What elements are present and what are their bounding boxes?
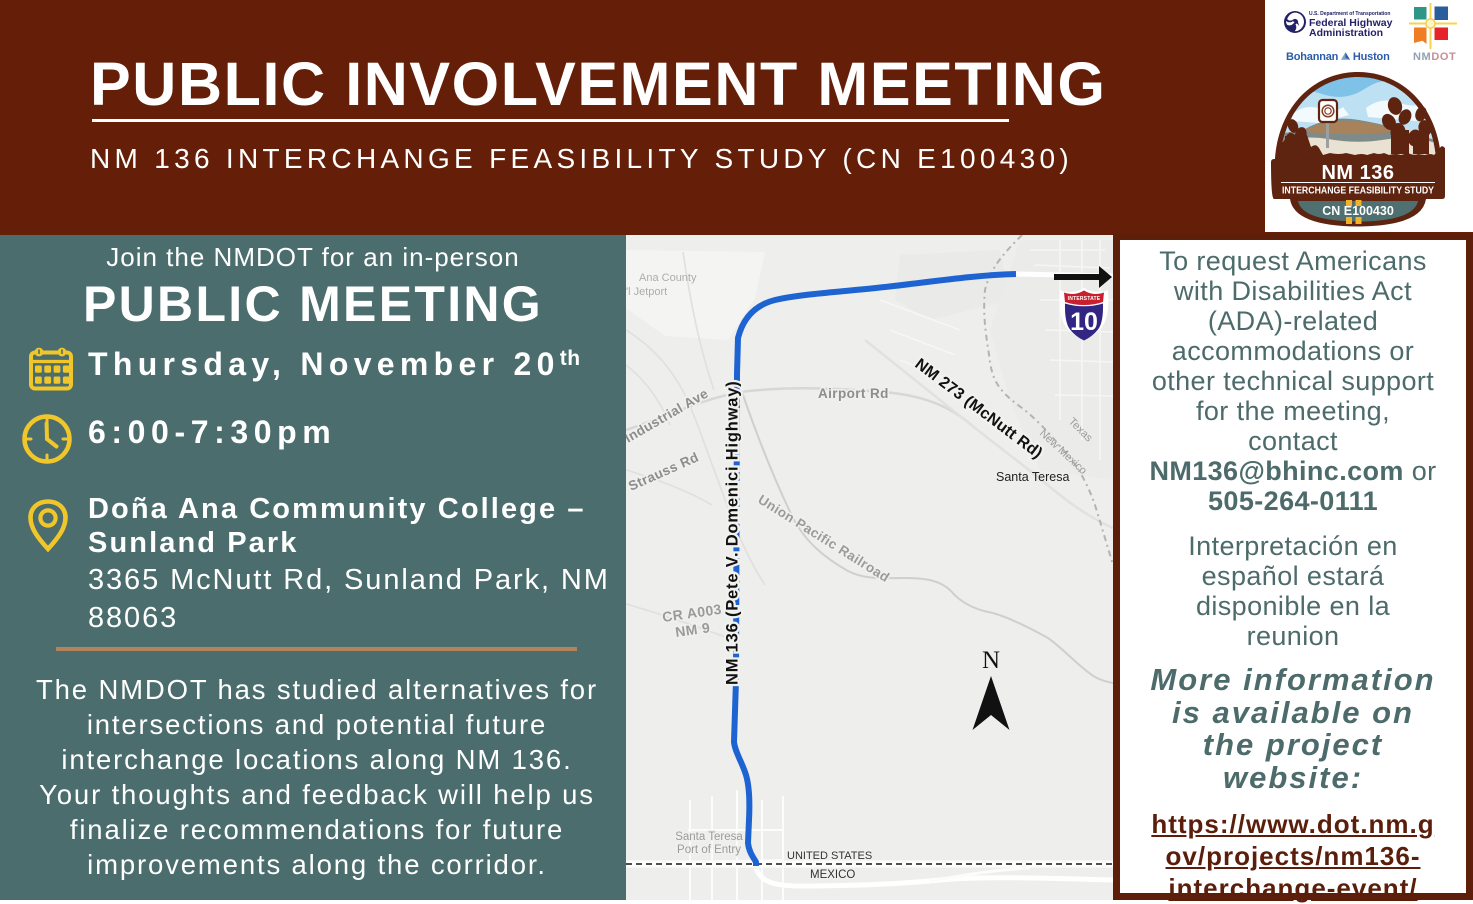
svg-text:INTERCHANGE FEASIBILITY STUDY: INTERCHANGE FEASIBILITY STUDY (1282, 185, 1434, 197)
svg-text:'l Jetport: 'l Jetport (626, 286, 667, 298)
svg-text:UNITED STATES: UNITED STATES (787, 850, 872, 862)
svg-text:NM 136: NM 136 (1321, 162, 1394, 184)
svg-text:NM 136 (Pete V. Domenici Highw: NM 136 (Pete V. Domenici Highway) (724, 380, 742, 685)
svg-text:CN E100430: CN E100430 (1322, 204, 1394, 218)
svg-text:Santa Teresa: Santa Teresa (996, 470, 1069, 484)
svg-text:10: 10 (1070, 308, 1098, 336)
svg-text:N: N (982, 647, 1000, 674)
svg-text:Airport Rd: Airport Rd (818, 386, 889, 401)
svg-text:MEXICO: MEXICO (810, 869, 855, 881)
svg-text:Ana County: Ana County (639, 272, 697, 284)
svg-text:INTERSTATE: INTERSTATE (1068, 296, 1101, 302)
svg-text:Santa Teresa: Santa Teresa (675, 831, 743, 843)
svg-text:Port of Entry: Port of Entry (677, 844, 741, 856)
